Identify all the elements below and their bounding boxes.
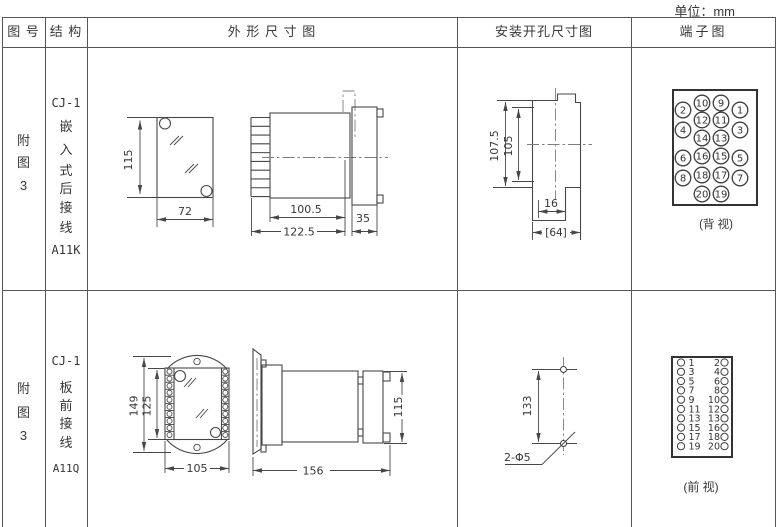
hole-callout-label: 2-Φ5 xyxy=(504,451,531,464)
terminal-screw xyxy=(167,383,172,388)
terminal-number: 15 xyxy=(715,152,728,163)
terminal-circle xyxy=(677,433,684,440)
terminal-circle xyxy=(677,405,684,412)
terminal-screw xyxy=(167,376,172,381)
terminal-screw xyxy=(167,426,172,431)
terminal-screw xyxy=(167,411,172,416)
terminal-screw xyxy=(223,376,228,381)
dim-label-outer-height: 107.5 xyxy=(488,130,501,162)
terminal-number: 17 xyxy=(715,171,728,182)
dim-label-width: 72 xyxy=(178,205,192,218)
terminal-screw xyxy=(223,411,228,416)
terminal-number: 16 xyxy=(696,152,709,163)
terminal-screw xyxy=(167,369,172,374)
engineering-drawing-layer: 115 72 100.5 122.5 35 xyxy=(0,0,780,527)
terminal-circle xyxy=(721,396,728,403)
terminal-number: 12 xyxy=(696,116,709,127)
terminal-number: 14 xyxy=(696,134,709,145)
row1-view-label: (背 视) xyxy=(699,217,733,231)
terminal-number: 18 xyxy=(696,171,709,182)
terminal-circle xyxy=(677,387,684,394)
row2-side-view: 115 156 xyxy=(253,349,407,478)
terminal-number: 20 xyxy=(708,442,720,453)
terminal-screw xyxy=(167,404,172,409)
row1-side-view: 100.5 122.5 35 xyxy=(251,91,388,239)
row1-front-view: 115 72 xyxy=(122,118,213,228)
row1-mounting-cutout: 107.5 105 16 [64] xyxy=(488,88,592,240)
glass-hatch-marks xyxy=(184,378,208,418)
terminal-circle xyxy=(677,424,684,431)
manual-page: 单位：mm 图 号 结 构 外 形 尺 寸 图 安装开孔尺寸图 端子图 附 图 … xyxy=(0,0,780,527)
dim-label-total-depth: 122.5 xyxy=(283,226,315,239)
row2-terminal-diagram: 1234567891011121313151617181920 (前 视) xyxy=(672,357,732,494)
row1-terminal-diagram: 2109141211314136161558181772019 (背 视) xyxy=(673,90,757,231)
terminal-number: 8 xyxy=(680,174,686,185)
front-terminal-rows: 1234567891011121313151617181920 xyxy=(677,358,728,453)
terminal-circle xyxy=(677,396,684,403)
terminal-circle xyxy=(721,405,728,412)
terminal-screw xyxy=(167,433,172,438)
terminal-circle xyxy=(721,387,728,394)
terminal-circle xyxy=(677,368,684,375)
terminal-screw xyxy=(223,433,228,438)
dim-label-front-depth: 35 xyxy=(356,212,370,225)
terminal-number: 4 xyxy=(680,126,686,137)
dim-label-opening-width: [64] xyxy=(545,227,567,239)
table-grid xyxy=(2,18,776,527)
row2-view-label: (前 视) xyxy=(683,479,718,494)
dim-label-outer-height: 149 xyxy=(128,396,141,417)
terminal-screw xyxy=(223,426,228,431)
terminal-number: 19 xyxy=(715,190,728,201)
terminal-screw xyxy=(223,404,228,409)
dim-label-width: 105 xyxy=(187,462,208,475)
dim-label-height: 115 xyxy=(122,150,135,171)
dim-label-body-depth: 100.5 xyxy=(290,203,322,216)
dim-label-notch-width: 16 xyxy=(544,197,558,210)
terminal-screw xyxy=(223,397,228,402)
terminal-circle xyxy=(721,359,728,366)
terminal-circle xyxy=(677,443,684,450)
terminal-number: 3 xyxy=(737,126,743,137)
terminal-screw xyxy=(167,397,172,402)
terminal-screw xyxy=(223,383,228,388)
terminal-number: 7 xyxy=(737,174,743,185)
terminal-screw xyxy=(167,390,172,395)
terminal-circle xyxy=(677,359,684,366)
row2-mounting-holes: 133 2-Φ5 xyxy=(504,357,577,465)
terminal-circle xyxy=(721,433,728,440)
dim-label-inner-height: 125 xyxy=(141,396,154,417)
dim-label-hole-height: 105 xyxy=(502,136,515,157)
terminal-number: 19 xyxy=(689,442,701,453)
terminal-screw xyxy=(167,418,172,423)
terminal-number: 11 xyxy=(715,116,728,127)
terminal-number: 5 xyxy=(737,154,743,165)
terminal-circle xyxy=(721,443,728,450)
terminal-circle xyxy=(721,368,728,375)
terminal-circle xyxy=(721,424,728,431)
terminal-screw xyxy=(223,418,228,423)
terminal-circle xyxy=(721,378,728,385)
glass-hatch-marks xyxy=(170,136,198,173)
terminal-number: 13 xyxy=(715,134,728,145)
terminal-circle xyxy=(721,415,728,422)
terminal-screw xyxy=(223,390,228,395)
terminal-number: 20 xyxy=(696,190,709,201)
dim-label-hole-spacing: 133 xyxy=(521,396,534,417)
terminal-circle xyxy=(677,378,684,385)
terminal-number: 6 xyxy=(680,154,686,165)
row2-front-view: 149 125 105 xyxy=(128,355,230,475)
rear-terminal-circles: 2109141211314136161558181772019 xyxy=(675,95,748,202)
terminal-circle xyxy=(677,415,684,422)
terminal-number: 10 xyxy=(696,99,709,110)
terminal-number: 1 xyxy=(737,106,743,117)
dim-label-depth: 156 xyxy=(303,465,324,478)
terminal-screw xyxy=(223,369,228,374)
terminal-number: 2 xyxy=(680,106,686,117)
dim-label-cover-height: 115 xyxy=(392,397,405,418)
terminal-number: 9 xyxy=(718,99,724,110)
